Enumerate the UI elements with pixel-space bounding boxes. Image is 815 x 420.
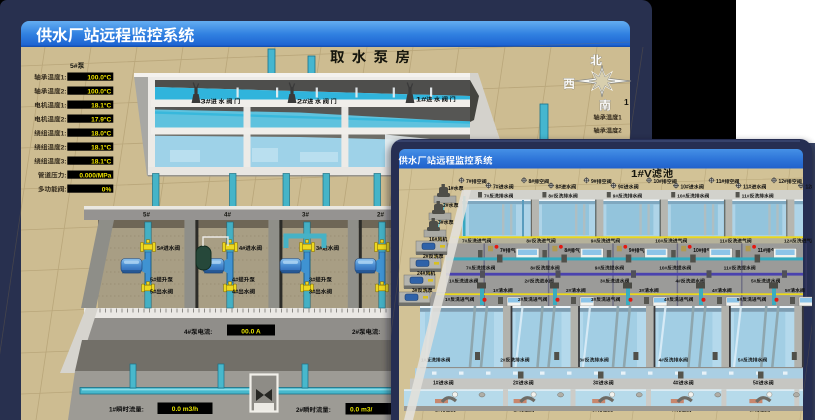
svg-text:5#: 5#	[753, 381, 759, 387]
svg-text:11#: 11#	[743, 185, 752, 191]
svg-text:0.000/MPa: 0.000/MPa	[79, 173, 111, 180]
svg-text:10#: 10#	[677, 194, 685, 200]
svg-text:4#: 4#	[712, 288, 718, 294]
svg-text:9#: 9#	[629, 248, 635, 254]
svg-text:2#: 2#	[518, 297, 524, 303]
svg-text:2#: 2#	[352, 329, 360, 336]
svg-text:11#: 11#	[758, 248, 767, 254]
svg-text:4#: 4#	[676, 279, 682, 285]
svg-text:1#: 1#	[416, 97, 427, 104]
svg-text:5#: 5#	[150, 290, 157, 296]
svg-text:4#: 4#	[184, 329, 192, 336]
svg-text:1#: 1#	[109, 407, 117, 414]
svg-text:0.0 m3/: 0.0 m3/	[350, 407, 373, 414]
svg-text:10#: 10#	[659, 266, 667, 272]
svg-text:10#: 10#	[681, 185, 690, 191]
svg-text:7#: 7#	[466, 179, 472, 185]
svg-text:5#: 5#	[737, 297, 743, 303]
svg-text:5#: 5#	[143, 212, 150, 219]
svg-text:1#: 1#	[433, 381, 439, 387]
svg-text:100.0°C: 100.0°C	[87, 88, 111, 96]
svg-text:2#: 2#	[423, 254, 429, 260]
svg-text:18.0°C: 18.0°C	[91, 130, 111, 138]
svg-text:1#: 1#	[493, 288, 499, 294]
svg-text:1:: 1:	[61, 103, 67, 110]
svg-text:2#: 2#	[500, 358, 506, 364]
svg-text:11#: 11#	[724, 266, 732, 272]
svg-text:8#: 8#	[548, 194, 554, 200]
svg-text:8#: 8#	[530, 266, 536, 272]
svg-text:4#: 4#	[659, 358, 665, 364]
svg-text:4#: 4#	[232, 278, 239, 284]
svg-text:3#: 3#	[591, 297, 597, 303]
svg-text:4#: 4#	[664, 297, 670, 303]
svg-text:11#: 11#	[742, 194, 750, 200]
svg-text:2#: 2#	[566, 288, 572, 294]
svg-text:9#: 9#	[595, 266, 601, 272]
svg-text:5#: 5#	[751, 279, 757, 285]
svg-text:18.1°C: 18.1°C	[91, 144, 111, 152]
svg-text::: :	[64, 187, 66, 194]
svg-text::: :	[329, 407, 331, 414]
svg-text:24#: 24#	[417, 271, 426, 277]
svg-text:4#: 4#	[239, 246, 246, 252]
svg-text:3#: 3#	[600, 279, 606, 285]
svg-text:16#: 16#	[429, 237, 438, 243]
svg-text:17.9°C: 17.9°C	[91, 116, 111, 124]
svg-text:12#: 12#	[779, 179, 788, 185]
svg-text:1#: 1#	[445, 297, 451, 303]
svg-text:2#: 2#	[443, 203, 449, 209]
svg-text:9#: 9#	[613, 194, 619, 200]
svg-text:10#: 10#	[654, 179, 663, 185]
svg-text:5#: 5#	[738, 358, 744, 364]
svg-text::: :	[378, 329, 380, 336]
svg-text:4#: 4#	[224, 212, 231, 219]
svg-text:0%: 0%	[102, 187, 112, 194]
svg-text:3#: 3#	[639, 288, 645, 294]
svg-text:7#: 7#	[493, 185, 499, 191]
svg-text:1:: 1:	[61, 131, 67, 138]
svg-text:5#: 5#	[150, 278, 157, 284]
svg-text:00.0 A: 00.0 A	[241, 329, 261, 336]
svg-text:4#: 4#	[673, 381, 679, 387]
svg-text:7#: 7#	[484, 194, 490, 200]
svg-text:5#: 5#	[70, 63, 78, 70]
svg-text:3#: 3#	[412, 288, 418, 294]
svg-text:2#: 2#	[297, 99, 308, 106]
svg-text:3:: 3:	[61, 159, 67, 166]
svg-text:2#: 2#	[513, 381, 519, 387]
svg-text::: :	[142, 407, 144, 414]
svg-text:0.0 m3/h: 0.0 m3/h	[172, 406, 198, 413]
svg-text:3#: 3#	[302, 212, 309, 219]
svg-text:2:: 2:	[61, 89, 67, 96]
svg-text::: :	[64, 173, 66, 180]
svg-text:3#: 3#	[579, 358, 585, 364]
svg-text:100.0°C: 100.0°C	[87, 74, 111, 82]
svg-text:2#: 2#	[296, 407, 304, 414]
svg-text:7#: 7#	[466, 266, 472, 272]
svg-text:2:: 2:	[61, 117, 67, 124]
svg-text:3#: 3#	[309, 278, 316, 284]
svg-text:1#: 1#	[449, 279, 455, 285]
svg-text:8#: 8#	[564, 248, 570, 254]
svg-text:10#: 10#	[693, 248, 702, 254]
svg-text:1#: 1#	[448, 186, 454, 192]
svg-text:1: 1	[624, 97, 629, 107]
svg-text:18.1°C: 18.1°C	[91, 102, 111, 110]
svg-text:2: 2	[618, 128, 622, 135]
svg-text:3#: 3#	[309, 290, 316, 296]
svg-text:5#: 5#	[157, 246, 164, 252]
svg-text:18.1°C: 18.1°C	[91, 158, 111, 166]
svg-text:3#: 3#	[201, 99, 212, 106]
svg-text:2#: 2#	[525, 279, 531, 285]
svg-text::: :	[210, 329, 212, 336]
svg-text:11#: 11#	[716, 179, 725, 185]
svg-text:1:: 1:	[61, 75, 67, 82]
svg-text:4#: 4#	[232, 290, 239, 296]
svg-text:3#: 3#	[438, 220, 444, 226]
svg-text:9#: 9#	[618, 185, 624, 191]
svg-text:5#: 5#	[785, 288, 791, 294]
svg-text:9#: 9#	[591, 179, 597, 185]
svg-text:8#: 8#	[556, 185, 562, 191]
svg-text:3#: 3#	[593, 381, 599, 387]
svg-text:1: 1	[618, 115, 622, 122]
svg-text:2:: 2:	[61, 145, 67, 152]
svg-text:8#: 8#	[529, 179, 535, 185]
svg-text:7#: 7#	[500, 248, 506, 254]
svg-text:2#: 2#	[377, 212, 384, 219]
